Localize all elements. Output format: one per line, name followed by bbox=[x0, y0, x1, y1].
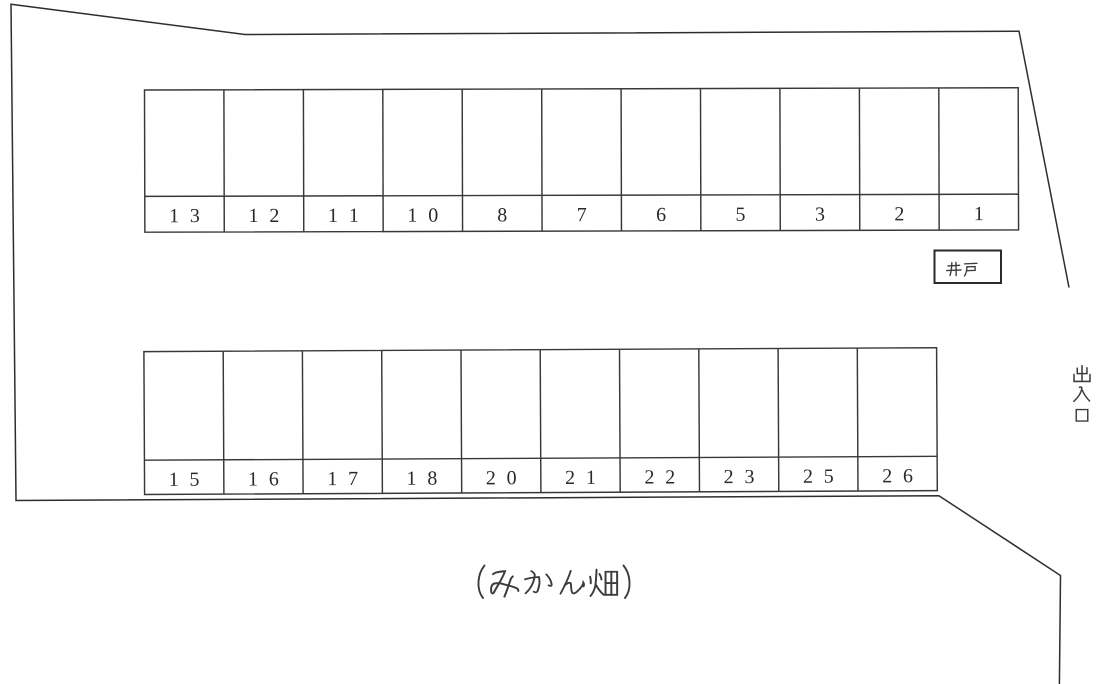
svg-text:3: 3 bbox=[744, 466, 754, 488]
svg-text:8: 8 bbox=[427, 468, 437, 490]
svg-text:1: 1 bbox=[586, 467, 596, 489]
svg-text:1: 1 bbox=[974, 203, 984, 225]
svg-text:2: 2 bbox=[665, 466, 675, 488]
svg-text:1: 1 bbox=[407, 205, 417, 227]
svg-text:1: 1 bbox=[328, 205, 338, 227]
svg-text:3: 3 bbox=[815, 204, 825, 226]
svg-text:0: 0 bbox=[507, 467, 517, 489]
svg-text:6: 6 bbox=[903, 465, 913, 487]
svg-text:2: 2 bbox=[894, 203, 904, 225]
svg-text:6: 6 bbox=[656, 204, 666, 226]
svg-text:2: 2 bbox=[269, 205, 279, 227]
svg-text:1: 1 bbox=[406, 468, 416, 490]
svg-text:2: 2 bbox=[882, 465, 892, 487]
svg-text:3: 3 bbox=[190, 205, 200, 227]
svg-text:7: 7 bbox=[577, 204, 587, 226]
svg-text:1: 1 bbox=[248, 468, 258, 490]
svg-text:2: 2 bbox=[644, 467, 654, 489]
svg-text:1: 1 bbox=[248, 205, 258, 227]
svg-text:6: 6 bbox=[269, 468, 279, 490]
svg-text:7: 7 bbox=[348, 468, 358, 490]
svg-text:2: 2 bbox=[724, 466, 734, 488]
svg-text:8: 8 bbox=[497, 204, 507, 226]
svg-text:2: 2 bbox=[565, 467, 575, 489]
svg-text:1: 1 bbox=[349, 205, 359, 227]
svg-text:2: 2 bbox=[803, 466, 813, 488]
svg-text:5: 5 bbox=[735, 204, 745, 226]
svg-text:1: 1 bbox=[169, 205, 179, 227]
svg-text:0: 0 bbox=[428, 205, 438, 227]
svg-text:5: 5 bbox=[189, 469, 199, 491]
svg-text:1: 1 bbox=[169, 469, 179, 491]
svg-text:5: 5 bbox=[824, 466, 834, 488]
svg-text:1: 1 bbox=[327, 468, 337, 490]
svg-text:2: 2 bbox=[486, 467, 496, 489]
